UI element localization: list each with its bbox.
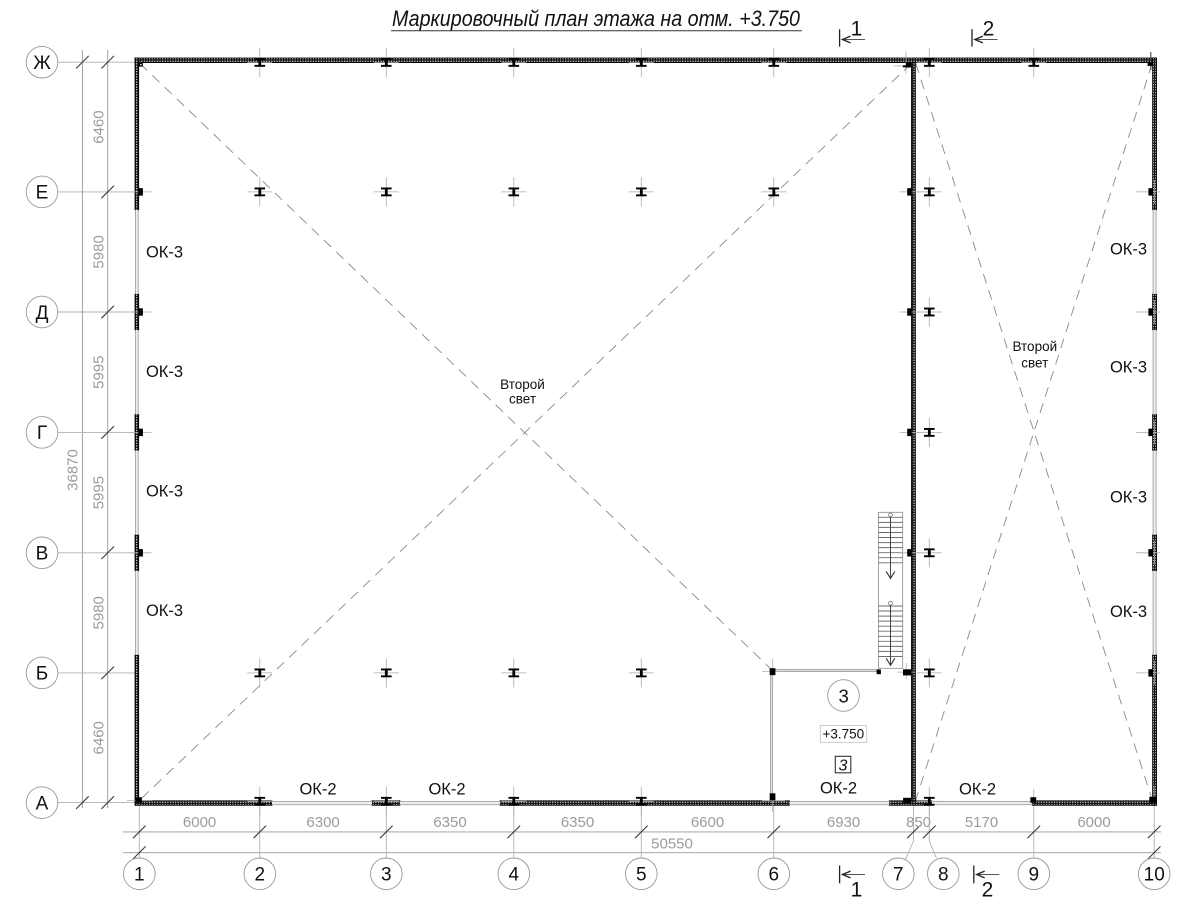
svg-text:6000: 6000 — [183, 814, 216, 831]
svg-text:ОК-3: ОК-3 — [146, 244, 183, 262]
svg-text:2: 2 — [255, 865, 266, 886]
svg-text:3: 3 — [381, 865, 392, 886]
svg-text:1: 1 — [851, 879, 863, 900]
svg-text:В: В — [36, 544, 49, 565]
svg-text:свет: свет — [509, 392, 536, 407]
svg-text:А: А — [36, 793, 49, 814]
svg-text:5980: 5980 — [91, 596, 108, 629]
svg-text:ОК-2: ОК-2 — [299, 781, 336, 799]
svg-text:10: 10 — [1144, 865, 1165, 886]
svg-text:5980: 5980 — [91, 235, 108, 268]
svg-text:6460: 6460 — [91, 721, 108, 754]
svg-text:ОК-3: ОК-3 — [146, 363, 183, 381]
svg-text:Второй: Второй — [500, 377, 545, 392]
svg-text:ОК-3: ОК-3 — [146, 602, 183, 620]
svg-text:Е: Е — [36, 183, 49, 204]
svg-text:Второй: Второй — [1012, 339, 1057, 354]
svg-text:ОК-3: ОК-3 — [1110, 359, 1147, 377]
svg-text:850: 850 — [906, 814, 931, 831]
svg-text:6930: 6930 — [827, 814, 860, 831]
svg-text:6000: 6000 — [1077, 814, 1110, 831]
svg-text:ОК-2: ОК-2 — [428, 781, 465, 799]
svg-text:ОК-3: ОК-3 — [1110, 603, 1147, 621]
svg-text:свет: свет — [1021, 356, 1048, 371]
svg-text:2: 2 — [983, 18, 995, 41]
svg-text:9: 9 — [1029, 865, 1040, 886]
svg-text:5995: 5995 — [91, 356, 108, 389]
svg-text:6600: 6600 — [691, 814, 724, 831]
svg-text:6460: 6460 — [91, 110, 108, 143]
svg-text:6300: 6300 — [306, 814, 339, 831]
svg-text:50550: 50550 — [651, 836, 693, 853]
svg-text:ОК-3: ОК-3 — [1110, 489, 1147, 507]
svg-text:36870: 36870 — [65, 449, 82, 491]
svg-text:6350: 6350 — [433, 814, 466, 831]
svg-text:ОК-2: ОК-2 — [959, 781, 996, 799]
svg-text:5170: 5170 — [965, 814, 998, 831]
svg-text:1: 1 — [851, 18, 863, 41]
svg-text:2: 2 — [982, 879, 994, 900]
svg-text:5995: 5995 — [91, 476, 108, 509]
svg-text:3: 3 — [839, 758, 848, 775]
svg-text:Ж: Ж — [33, 53, 51, 74]
svg-text:4: 4 — [509, 865, 520, 886]
svg-text:Г: Г — [37, 423, 47, 444]
svg-text:Д: Д — [36, 303, 49, 324]
svg-text:ОК-3: ОК-3 — [1110, 241, 1147, 259]
svg-text:7: 7 — [893, 865, 904, 886]
svg-text:6350: 6350 — [561, 814, 594, 831]
svg-text:Б: Б — [36, 664, 48, 685]
svg-text:ОК-3: ОК-3 — [146, 483, 183, 501]
svg-text:8: 8 — [938, 865, 949, 886]
svg-text:+3.750: +3.750 — [822, 727, 864, 742]
svg-text:Маркировочный план этажа на от: Маркировочный план этажа на отм. +3.750 — [392, 6, 800, 31]
svg-text:5: 5 — [636, 865, 647, 886]
svg-text:3: 3 — [839, 686, 849, 707]
svg-text:ОК-2: ОК-2 — [820, 780, 857, 798]
svg-text:6: 6 — [769, 865, 780, 886]
svg-text:1: 1 — [134, 865, 145, 886]
